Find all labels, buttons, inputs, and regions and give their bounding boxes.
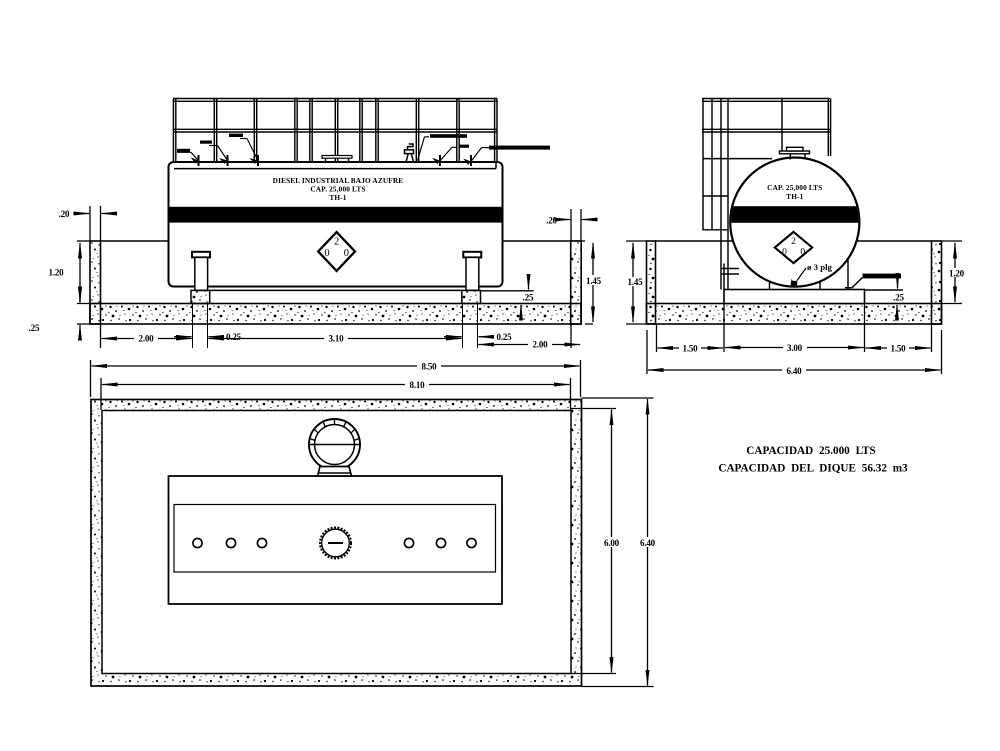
svg-text:2: 2 bbox=[791, 237, 796, 247]
svg-text:1.20: 1.20 bbox=[49, 268, 65, 278]
svg-text:1.45: 1.45 bbox=[628, 277, 644, 287]
svg-text:TH-1: TH-1 bbox=[329, 193, 346, 202]
svg-text:3.10: 3.10 bbox=[329, 334, 345, 344]
svg-text:6.40: 6.40 bbox=[787, 366, 803, 376]
svg-text:0: 0 bbox=[324, 248, 329, 259]
svg-text:0: 0 bbox=[782, 247, 787, 257]
svg-text:0: 0 bbox=[800, 247, 805, 257]
svg-text:ø 3 plg: ø 3 plg bbox=[807, 262, 833, 272]
svg-text:.25: .25 bbox=[893, 293, 904, 303]
svg-text:6.40: 6.40 bbox=[640, 538, 656, 548]
svg-text:CAPACIDAD DEL DIQUE 56.32: CAPACIDAD DEL DIQUE 56.32 m3 bbox=[718, 463, 908, 475]
svg-text:CAP. 25,000 LTS: CAP. 25,000 LTS bbox=[767, 183, 822, 192]
svg-text:3.00: 3.00 bbox=[787, 343, 803, 353]
svg-text:.20: .20 bbox=[546, 216, 557, 226]
svg-text:1.50: 1.50 bbox=[683, 344, 699, 354]
svg-text:0.25: 0.25 bbox=[226, 332, 242, 342]
svg-text:6.00: 6.00 bbox=[604, 538, 620, 548]
svg-text:.25: .25 bbox=[29, 323, 40, 333]
svg-text:TH-1: TH-1 bbox=[786, 192, 803, 201]
svg-text:.25: .25 bbox=[523, 293, 534, 303]
svg-text:8.50: 8.50 bbox=[422, 362, 438, 372]
svg-text:2: 2 bbox=[334, 237, 339, 248]
svg-text:2.00: 2.00 bbox=[139, 334, 155, 344]
svg-text:CAPACIDAD 25.000 LTS: CAPACIDAD 25.000 LTS bbox=[746, 445, 875, 457]
svg-text:.20: .20 bbox=[59, 209, 70, 219]
svg-text:2.00: 2.00 bbox=[533, 340, 549, 350]
svg-text:0: 0 bbox=[344, 248, 349, 259]
svg-text:1.45: 1.45 bbox=[586, 276, 602, 286]
svg-text:1.50: 1.50 bbox=[891, 344, 907, 354]
svg-text:0.25: 0.25 bbox=[497, 332, 513, 342]
svg-text:8.10: 8.10 bbox=[410, 380, 426, 390]
svg-text:1.20: 1.20 bbox=[949, 269, 965, 279]
